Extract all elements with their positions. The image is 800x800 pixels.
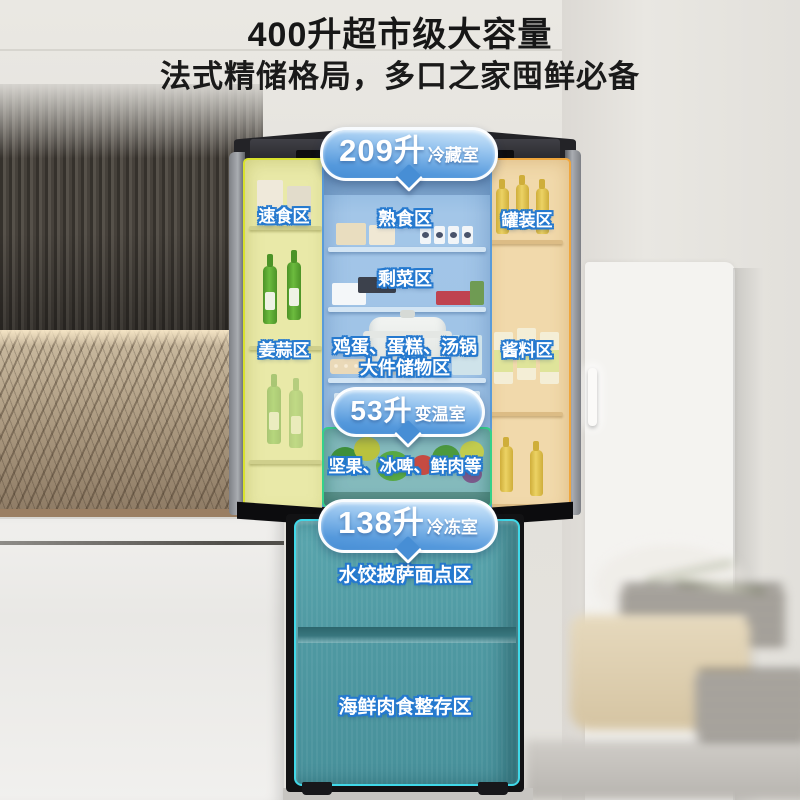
zone-label-line2: 大件储物区 [333, 358, 477, 379]
stone-backsplash [0, 330, 247, 517]
capacity-badge-fridge: 209升冷藏室 [320, 127, 498, 181]
zone-label-dumpling-pizza: 水饺披萨面点区 [338, 560, 471, 587]
badge-unit-label: 变温室 [415, 400, 466, 425]
zone-label-leftovers: 剩菜区 [378, 265, 432, 291]
blurred-counter-scene [525, 540, 800, 800]
door-shelf [249, 460, 322, 464]
counter-surface [525, 740, 800, 800]
zone-label-cooked-food: 熟食区 [378, 205, 432, 231]
zone-label-variable-temp: 坚果、冰啤、鲜肉等 [329, 452, 482, 477]
fridge-foot-right [478, 782, 508, 795]
zone-label-line1: 鸡蛋、蛋糕、汤锅 [333, 337, 477, 358]
zone-label-ginger-garlic: 姜蒜区 [259, 336, 310, 361]
product-infographic: 209升冷藏室 53升变温室 138升冷冻室 速食区 姜蒜区 罐装区 酱料区 熟… [0, 0, 800, 800]
glass-shelf [328, 247, 486, 252]
capacity-badge-variable: 53升变温室 [331, 387, 485, 437]
badge-unit-label: 冷藏室 [428, 141, 479, 166]
package-shape [336, 223, 366, 245]
plate-stack [695, 670, 800, 740]
cabinet-handle [588, 368, 597, 426]
green-bottle [267, 386, 281, 444]
zone-label-sauce: 酱料区 [502, 336, 553, 361]
green-bottle [287, 262, 301, 320]
zone-label-quick-food: 速食区 [259, 202, 310, 227]
page-subtitle: 法式精储格局，多口之家囤鲜必备 [0, 51, 800, 96]
page-title: 400升超市级大容量 [0, 7, 800, 56]
door-shelf [490, 240, 563, 244]
badge-value: 138升 [338, 502, 425, 544]
badge-value: 209升 [339, 130, 426, 172]
zone-label-seafood-meat: 海鲜肉食整存区 [338, 692, 471, 719]
zone-label-canned: 罐装区 [502, 206, 553, 231]
fridge-foot-left [302, 782, 332, 795]
slat-wall-panel [0, 84, 263, 332]
freezer-drawer-divider [298, 627, 516, 643]
capacity-badge-freezer: 138升冷冻室 [318, 499, 498, 553]
zone-label-big-item-storage: 鸡蛋、蛋糕、汤锅 大件储物区 [333, 337, 477, 379]
yogurt-cup [462, 226, 473, 244]
green-bottle [263, 266, 277, 324]
yogurt-cup [434, 226, 445, 244]
greens [470, 281, 484, 305]
door-shelf [490, 412, 563, 416]
red-berry-tray [436, 291, 474, 305]
badge-unit-label: 冷冻室 [427, 513, 478, 538]
yellow-bottle [530, 450, 543, 496]
yogurt-cup [448, 226, 459, 244]
yellow-bottle [500, 446, 513, 492]
green-bottle [289, 390, 303, 448]
left-cabinet [0, 517, 284, 800]
